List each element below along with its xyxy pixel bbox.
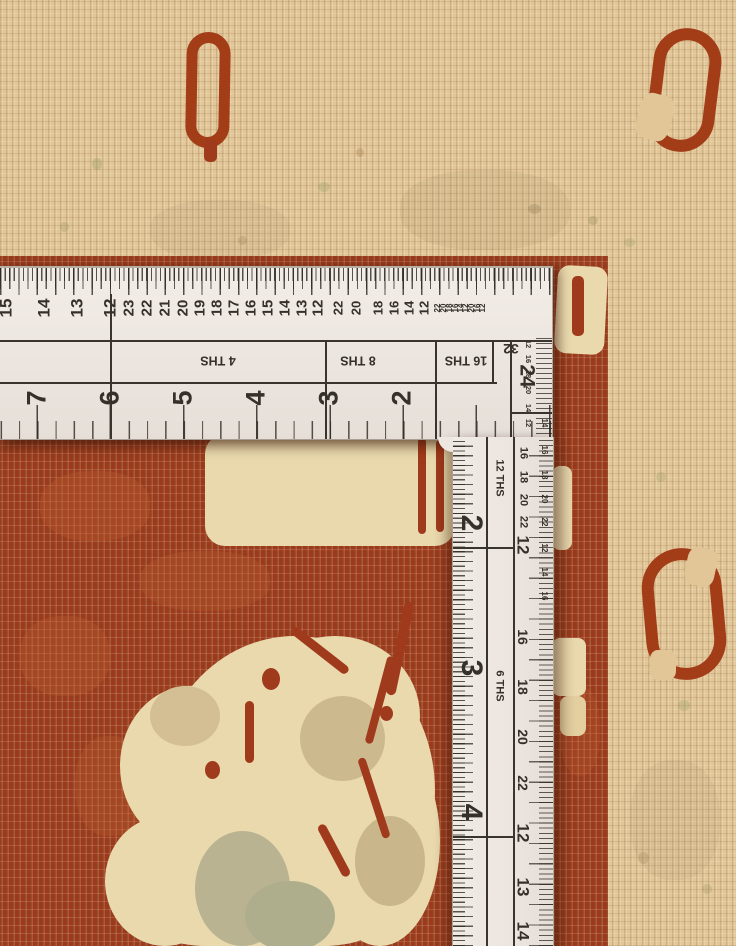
palmette-red-dot	[205, 761, 220, 779]
field-edge-motif-stripe	[572, 276, 584, 336]
ruler-number: 6	[97, 390, 124, 405]
ruler-tick-marks	[0, 268, 552, 289]
ruler-number: 13	[295, 300, 310, 317]
border-speckle	[678, 700, 690, 711]
ruler-number: 4 THS	[200, 354, 235, 367]
ruler-line	[486, 437, 488, 946]
palmette-red-dot	[380, 706, 393, 721]
ruler-number: 12 THS	[494, 459, 505, 496]
ruler-number: 16	[244, 300, 259, 317]
ruler-number: 8 THS	[340, 354, 375, 367]
ruler-number: 12	[515, 536, 532, 555]
ruler-number: 19	[193, 300, 208, 317]
ruler-number: 22	[140, 300, 155, 317]
ruler-number: 2	[389, 390, 416, 405]
ruler-line	[0, 382, 497, 384]
ruler-number: 23	[122, 300, 137, 317]
ruler-number: 14	[36, 299, 53, 318]
ruler-number: 20	[176, 300, 191, 317]
ruler-number: 12	[515, 824, 532, 843]
palmette-red-dot	[262, 668, 280, 690]
border-speckle	[624, 238, 635, 247]
ruler-number: 18	[524, 370, 532, 378]
ruler-tick-marks	[0, 268, 552, 295]
ruler-number: 7	[24, 390, 51, 405]
ruler-line	[492, 340, 494, 382]
ruler-number: 3	[316, 390, 343, 405]
ruler-number: 20	[516, 729, 530, 745]
ruler-number: 20	[540, 495, 548, 504]
ruler-number: 14	[278, 300, 293, 317]
border-speckle	[356, 148, 364, 157]
ruler-number: 15	[261, 300, 276, 317]
ruler-tick-marks	[539, 437, 553, 946]
ruler-tick-marks	[529, 437, 553, 946]
ruler-number: 4	[243, 390, 270, 405]
ruler-number: 3	[456, 660, 486, 677]
palmette-tan-patch	[150, 686, 220, 746]
border-speckle	[702, 884, 712, 894]
ruler-number: 12	[524, 419, 532, 427]
ruler-number: 16	[516, 629, 530, 645]
ruler-number: 14	[524, 404, 532, 412]
field-edge-notch	[552, 466, 572, 550]
palmette-sage-patch	[245, 881, 335, 946]
field-abrash	[40, 471, 150, 541]
ruler-number: 20	[518, 494, 529, 506]
ruler-number: 18	[540, 471, 548, 480]
ruler-number: 32	[503, 342, 519, 356]
ruler-number: 12	[540, 544, 548, 553]
ruler-number: 12	[418, 301, 431, 315]
ruler-vertical-arm: 234 12 THS6 THS 161820221216182022121314…	[452, 437, 554, 946]
ruler-number: 14	[403, 301, 416, 315]
ruler-number: 22	[540, 518, 548, 527]
ruler-number: 16	[524, 355, 532, 363]
field-abrash	[20, 616, 110, 696]
ruler-number: 22	[518, 516, 529, 528]
ruler-number: 22	[516, 775, 530, 791]
border-bud-top-left-stem	[204, 140, 217, 162]
ruler-number: 21	[158, 300, 173, 317]
ruler-number: 14	[540, 419, 548, 428]
photo-rug-with-ruler: 1514131223222120191817161514131222201816…	[0, 0, 736, 946]
ruler-number: 14	[540, 568, 548, 577]
ruler-line	[510, 412, 552, 414]
ruler-tick-marks	[453, 437, 473, 946]
ruler-tick-marks	[0, 405, 552, 439]
border-bud-right-gap	[650, 650, 676, 680]
ruler-number: 2	[456, 515, 486, 532]
field-edge-notch	[560, 696, 586, 736]
ruler-number: 12	[524, 340, 532, 348]
field-edge-notch	[552, 638, 586, 696]
border-pattern-shadow	[630, 760, 720, 880]
ruler-number: 5	[170, 390, 197, 405]
ruler-line	[453, 547, 514, 549]
field-motif-red-stripe	[436, 440, 444, 532]
ruler-number: 18	[210, 300, 225, 317]
ruler-number: 18	[518, 471, 529, 483]
ruler-horizontal-arm: 1514131223222120191817161514131222201816…	[0, 266, 553, 440]
ruler-number: 12	[311, 300, 326, 317]
ruler-line	[453, 836, 514, 838]
ruler-number: 20	[524, 386, 532, 394]
ruler-number: 13	[515, 878, 532, 897]
field-abrash	[140, 551, 270, 611]
ruler-number: 6 THS	[494, 670, 505, 701]
ruler-number: 16	[388, 301, 401, 315]
ruler-number: 13	[69, 299, 86, 318]
ruler-number: 20	[350, 301, 363, 315]
border-speckle	[92, 158, 102, 170]
ruler-number: 18	[516, 679, 530, 695]
ruler-number: 16	[518, 447, 529, 459]
border-speckle	[656, 472, 666, 482]
ruler-number: 14	[515, 922, 532, 941]
border-speckle	[60, 222, 69, 232]
field-motif-red-stripe	[418, 438, 426, 534]
ruler-number: 16	[540, 446, 548, 455]
ruler-number: 16 THS	[445, 354, 487, 367]
ruler-number: 12	[479, 304, 487, 313]
palmette-red-detail	[245, 701, 254, 763]
ruler-number: 15	[0, 299, 15, 318]
ruler-line	[0, 340, 552, 342]
ruler-number: 18	[372, 301, 385, 315]
border-speckle	[318, 182, 330, 192]
ruler-number: 22	[332, 301, 345, 315]
ruler-number: 16	[540, 592, 548, 601]
ruler-number: 12	[102, 299, 119, 318]
border-pattern-shadow	[150, 200, 290, 260]
ruler-tick-marks	[453, 437, 465, 946]
border-speckle	[588, 216, 598, 225]
border-bud-top-left	[185, 32, 231, 149]
ruler-tick-marks	[0, 268, 552, 281]
ruler-number: 17	[227, 300, 242, 317]
palmette-tan-patch	[355, 816, 425, 906]
border-pattern-shadow	[400, 170, 570, 250]
ruler-number: 4	[456, 804, 486, 821]
ruler-line	[435, 340, 437, 439]
